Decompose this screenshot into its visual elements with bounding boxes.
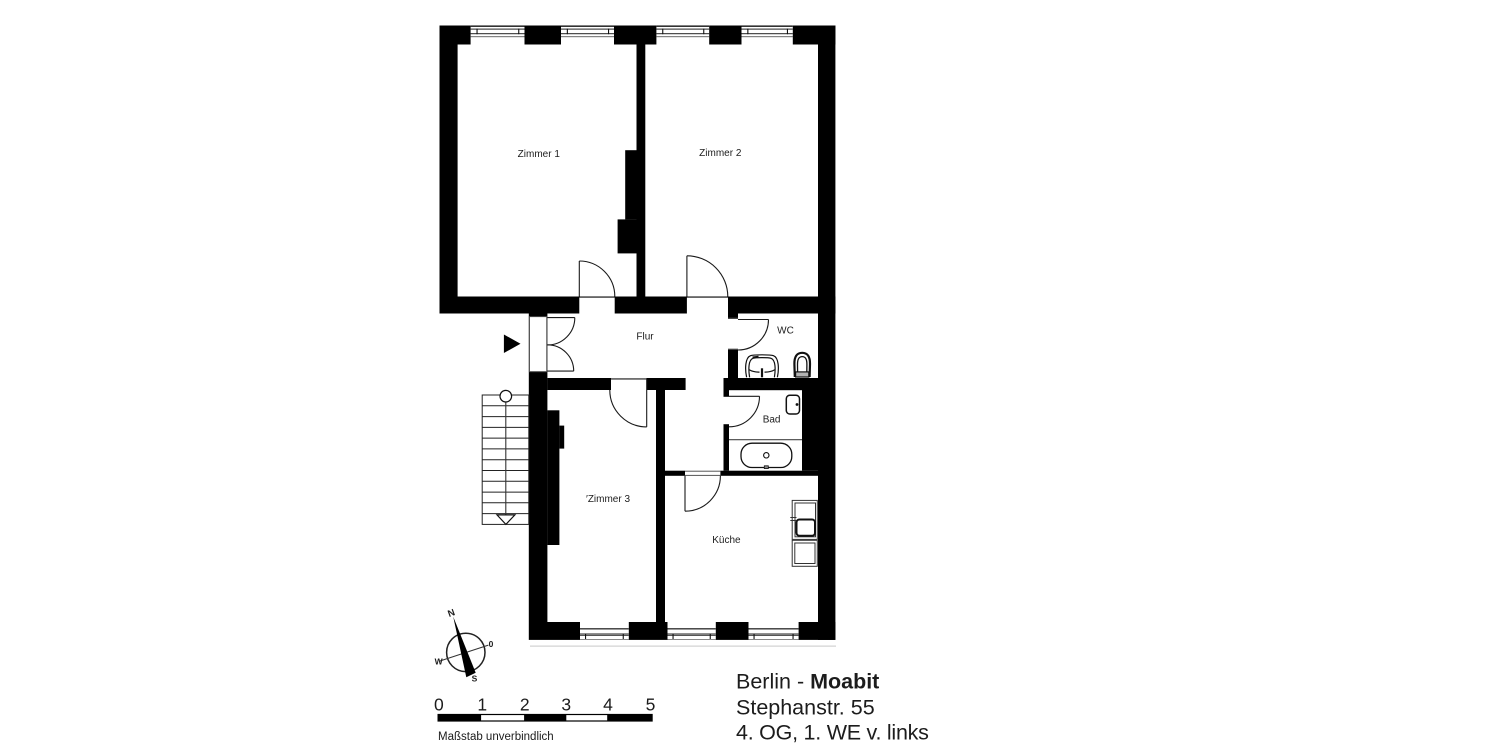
svg-text:Berlin - Moabit: Berlin - Moabit — [736, 670, 879, 694]
svg-text:2: 2 — [520, 695, 530, 715]
svg-text:N: N — [446, 607, 456, 620]
svg-text:1: 1 — [477, 695, 487, 715]
svg-text:4: 4 — [603, 695, 613, 715]
svg-text:W: W — [435, 657, 444, 667]
svg-text:Küche: Küche — [712, 535, 741, 546]
svg-text:5: 5 — [646, 695, 656, 715]
svg-text:Zimmer 1: Zimmer 1 — [518, 149, 561, 160]
svg-text:0: 0 — [489, 639, 494, 649]
svg-text:Flur: Flur — [636, 332, 654, 343]
svg-text:′Zimmer 3: ′Zimmer 3 — [586, 494, 631, 505]
svg-text:Bad: Bad — [763, 415, 781, 426]
svg-text:Zimmer 2: Zimmer 2 — [699, 148, 742, 159]
svg-text:0: 0 — [434, 695, 444, 715]
svg-text:4. OG, 1. WE v. links: 4. OG, 1. WE v. links — [736, 721, 929, 745]
svg-text:S: S — [472, 674, 478, 684]
svg-text:WC: WC — [777, 326, 794, 337]
svg-text:Maßstab unverbindlich: Maßstab unverbindlich — [438, 731, 554, 743]
svg-text:Stephanstr. 55: Stephanstr. 55 — [736, 696, 875, 720]
svg-text:3: 3 — [561, 695, 571, 715]
